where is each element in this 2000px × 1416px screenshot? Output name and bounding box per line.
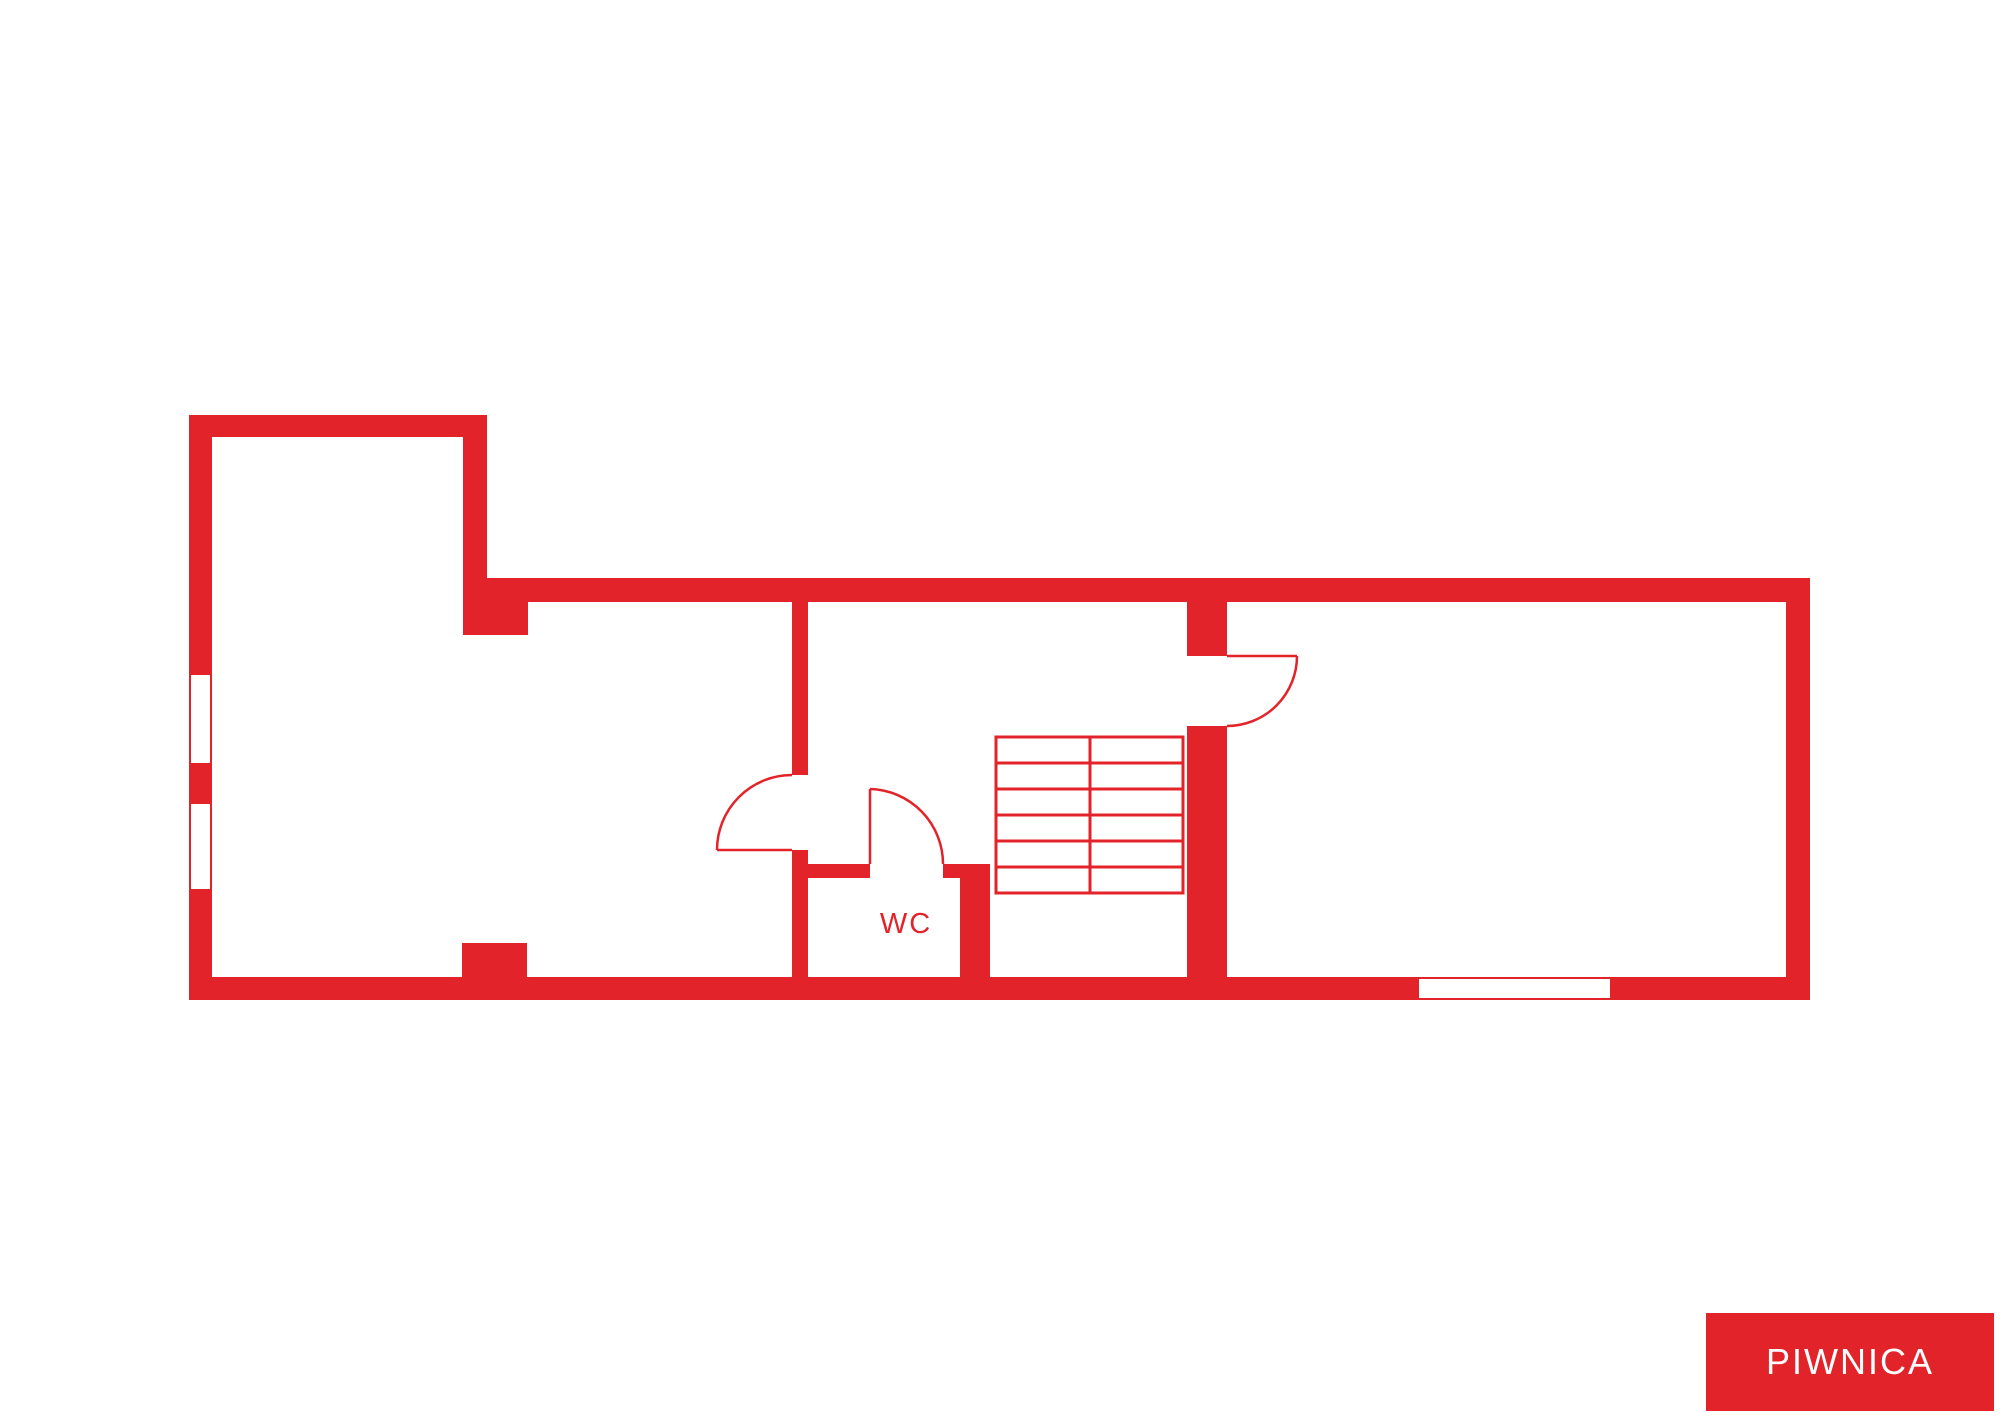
wc-room-label: WC (880, 908, 932, 940)
left-wall-pier (189, 765, 212, 802)
door-arc-right-room (1227, 656, 1297, 726)
windows (190, 674, 1611, 999)
floor-plan-page: WC PIWNICA (0, 0, 2000, 1416)
left-wall-upper (189, 437, 212, 673)
exterior-walls (189, 415, 1810, 1000)
wc-right-wall (960, 864, 990, 977)
interior-walls (462, 437, 1227, 977)
hall-right-wall-lower (1187, 726, 1227, 977)
left-room-right-wall (463, 437, 487, 603)
right-wall (1786, 578, 1810, 1000)
floor-badge-label: PIWNICA (1766, 1341, 1934, 1383)
pier-stub-top (463, 602, 528, 635)
left-room-top-wall (189, 415, 487, 437)
floor-badge: PIWNICA (1706, 1313, 1994, 1411)
door-arc-wc (870, 789, 943, 864)
hall-left-wall-upper (792, 602, 808, 775)
floor-plan: WC (0, 0, 2000, 1416)
door-arc-left-room (717, 775, 792, 850)
main-top-wall (485, 578, 1810, 602)
window-left-upper (190, 674, 211, 764)
window-left-lower (190, 803, 211, 890)
left-wall-lower (189, 891, 212, 977)
staircase (996, 737, 1183, 893)
hall-right-wall-upper (1187, 602, 1227, 656)
bottom-wall-left (189, 977, 1417, 1000)
pier-stub-bottom (462, 943, 527, 977)
wc-top-wall-left (792, 864, 870, 878)
window-bottom (1418, 978, 1611, 999)
bottom-wall-right (1612, 977, 1810, 1000)
